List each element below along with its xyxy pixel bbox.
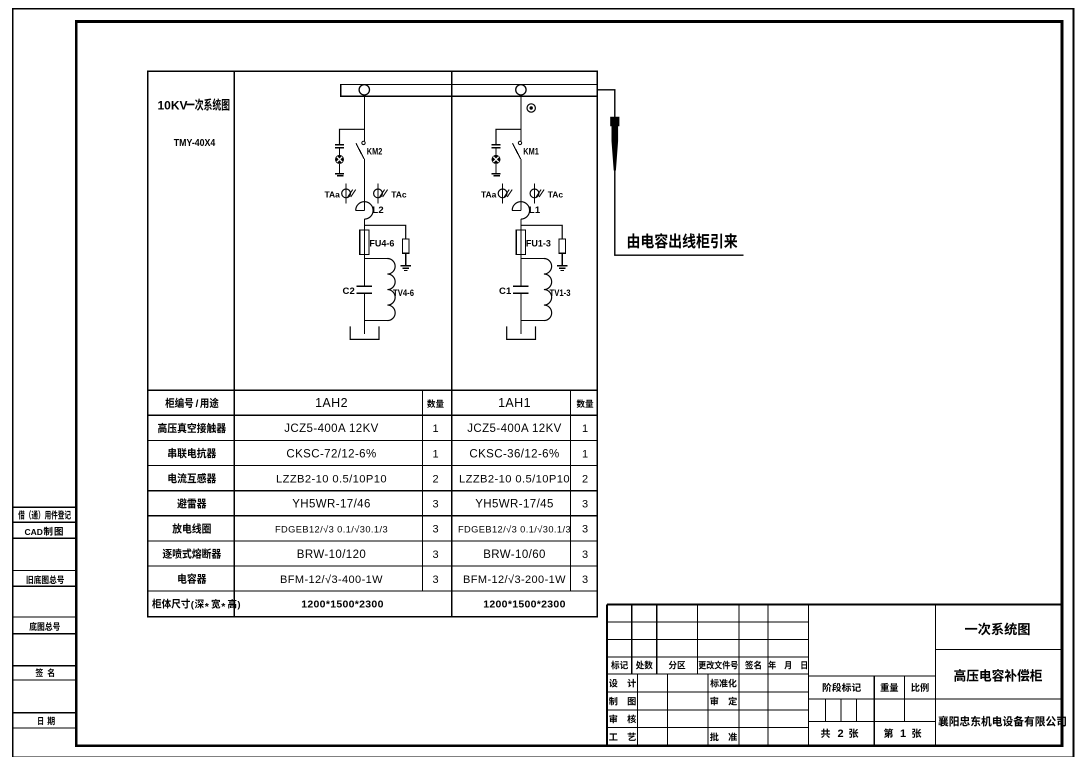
svg-text:1: 1 [432, 423, 438, 435]
svg-text:CAD: CAD [25, 527, 43, 537]
svg-text:1AH2: 1AH2 [315, 396, 348, 410]
svg-text:3: 3 [432, 574, 438, 586]
svg-text:LZZB2-10 0.5/10P10: LZZB2-10 0.5/10P10 [276, 473, 387, 485]
svg-text:3: 3 [432, 499, 438, 511]
svg-text:FDGEB12/√3 0.1/√30.1/3: FDGEB12/√3 0.1/√30.1/3 [275, 525, 388, 535]
svg-text:3: 3 [432, 524, 438, 536]
svg-text:L2: L2 [372, 205, 384, 216]
svg-text:(: ( [191, 600, 195, 611]
svg-text:TAc: TAc [548, 189, 564, 199]
svg-text:/: / [195, 398, 198, 410]
svg-text:): ) [237, 600, 240, 611]
svg-text:1: 1 [432, 448, 438, 460]
svg-text:LZZB2-10 0.5/10P10: LZZB2-10 0.5/10P10 [459, 473, 570, 485]
svg-text:BRW-10/60: BRW-10/60 [483, 549, 546, 561]
svg-text:KM2: KM2 [367, 146, 383, 156]
svg-text:CKSC-72/12-6%: CKSC-72/12-6% [286, 448, 376, 460]
svg-text:1200*1500*2300: 1200*1500*2300 [301, 599, 383, 611]
svg-text:C2: C2 [342, 286, 355, 297]
svg-text:JCZ5-400A 12KV: JCZ5-400A 12KV [467, 423, 561, 435]
svg-text:L1: L1 [529, 205, 541, 216]
svg-text:YH5WR-17/46: YH5WR-17/46 [292, 499, 371, 511]
svg-text:CKSC-36/12-6%: CKSC-36/12-6% [469, 448, 559, 460]
svg-text:3: 3 [582, 524, 588, 536]
svg-text:3: 3 [582, 574, 588, 586]
svg-text:KM1: KM1 [523, 146, 539, 156]
svg-text:2: 2 [582, 473, 588, 485]
svg-text:1: 1 [582, 448, 588, 460]
svg-text:*: * [205, 601, 210, 613]
svg-text:BRW-10/120: BRW-10/120 [297, 549, 366, 561]
svg-text:2: 2 [432, 473, 438, 485]
svg-text:JCZ5-400A 12KV: JCZ5-400A 12KV [284, 423, 378, 435]
svg-text:1: 1 [900, 728, 906, 740]
svg-text:TMY-40X4: TMY-40X4 [174, 137, 216, 149]
svg-text:2: 2 [837, 728, 843, 740]
svg-text:TV4-6: TV4-6 [393, 288, 414, 298]
svg-text:BFM-12/√3-200-1W: BFM-12/√3-200-1W [463, 574, 566, 586]
svg-text:1AH1: 1AH1 [498, 396, 531, 410]
svg-text:*: * [221, 601, 226, 613]
svg-text:TV1-3: TV1-3 [550, 288, 571, 298]
svg-text:FU4-6: FU4-6 [369, 239, 394, 249]
svg-text:3: 3 [582, 549, 588, 561]
svg-text:3: 3 [582, 499, 588, 511]
svg-text:1200*1500*2300: 1200*1500*2300 [483, 599, 565, 611]
svg-text:FDGEB12/√3 0.1/√30.1/3: FDGEB12/√3 0.1/√30.1/3 [458, 525, 571, 535]
svg-text:1: 1 [582, 423, 588, 435]
svg-text:3: 3 [432, 549, 438, 561]
svg-text:TAa: TAa [481, 189, 497, 199]
svg-text:C1: C1 [499, 286, 512, 297]
svg-text:YH5WR-17/45: YH5WR-17/45 [475, 499, 554, 511]
svg-text:TAa: TAa [324, 189, 340, 199]
svg-text:FU1-3: FU1-3 [526, 239, 551, 249]
svg-text:BFM-12/√3-400-1W: BFM-12/√3-400-1W [280, 574, 383, 586]
svg-text:10KV: 10KV [158, 99, 188, 113]
svg-text:TAc: TAc [391, 189, 407, 199]
